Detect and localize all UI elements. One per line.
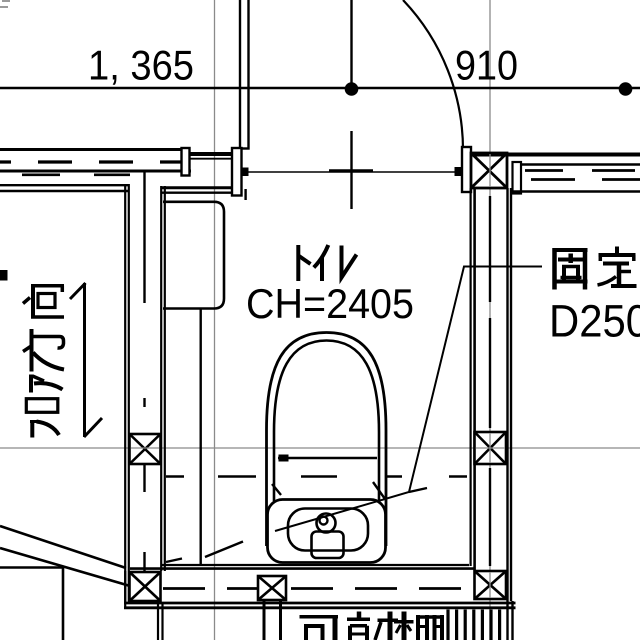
svg-text:D250: D250 (549, 296, 640, 347)
svg-text:CH=2405: CH=2405 (246, 280, 414, 327)
svg-text:1, 365: 1, 365 (88, 42, 194, 89)
svg-text:910: 910 (455, 42, 518, 89)
